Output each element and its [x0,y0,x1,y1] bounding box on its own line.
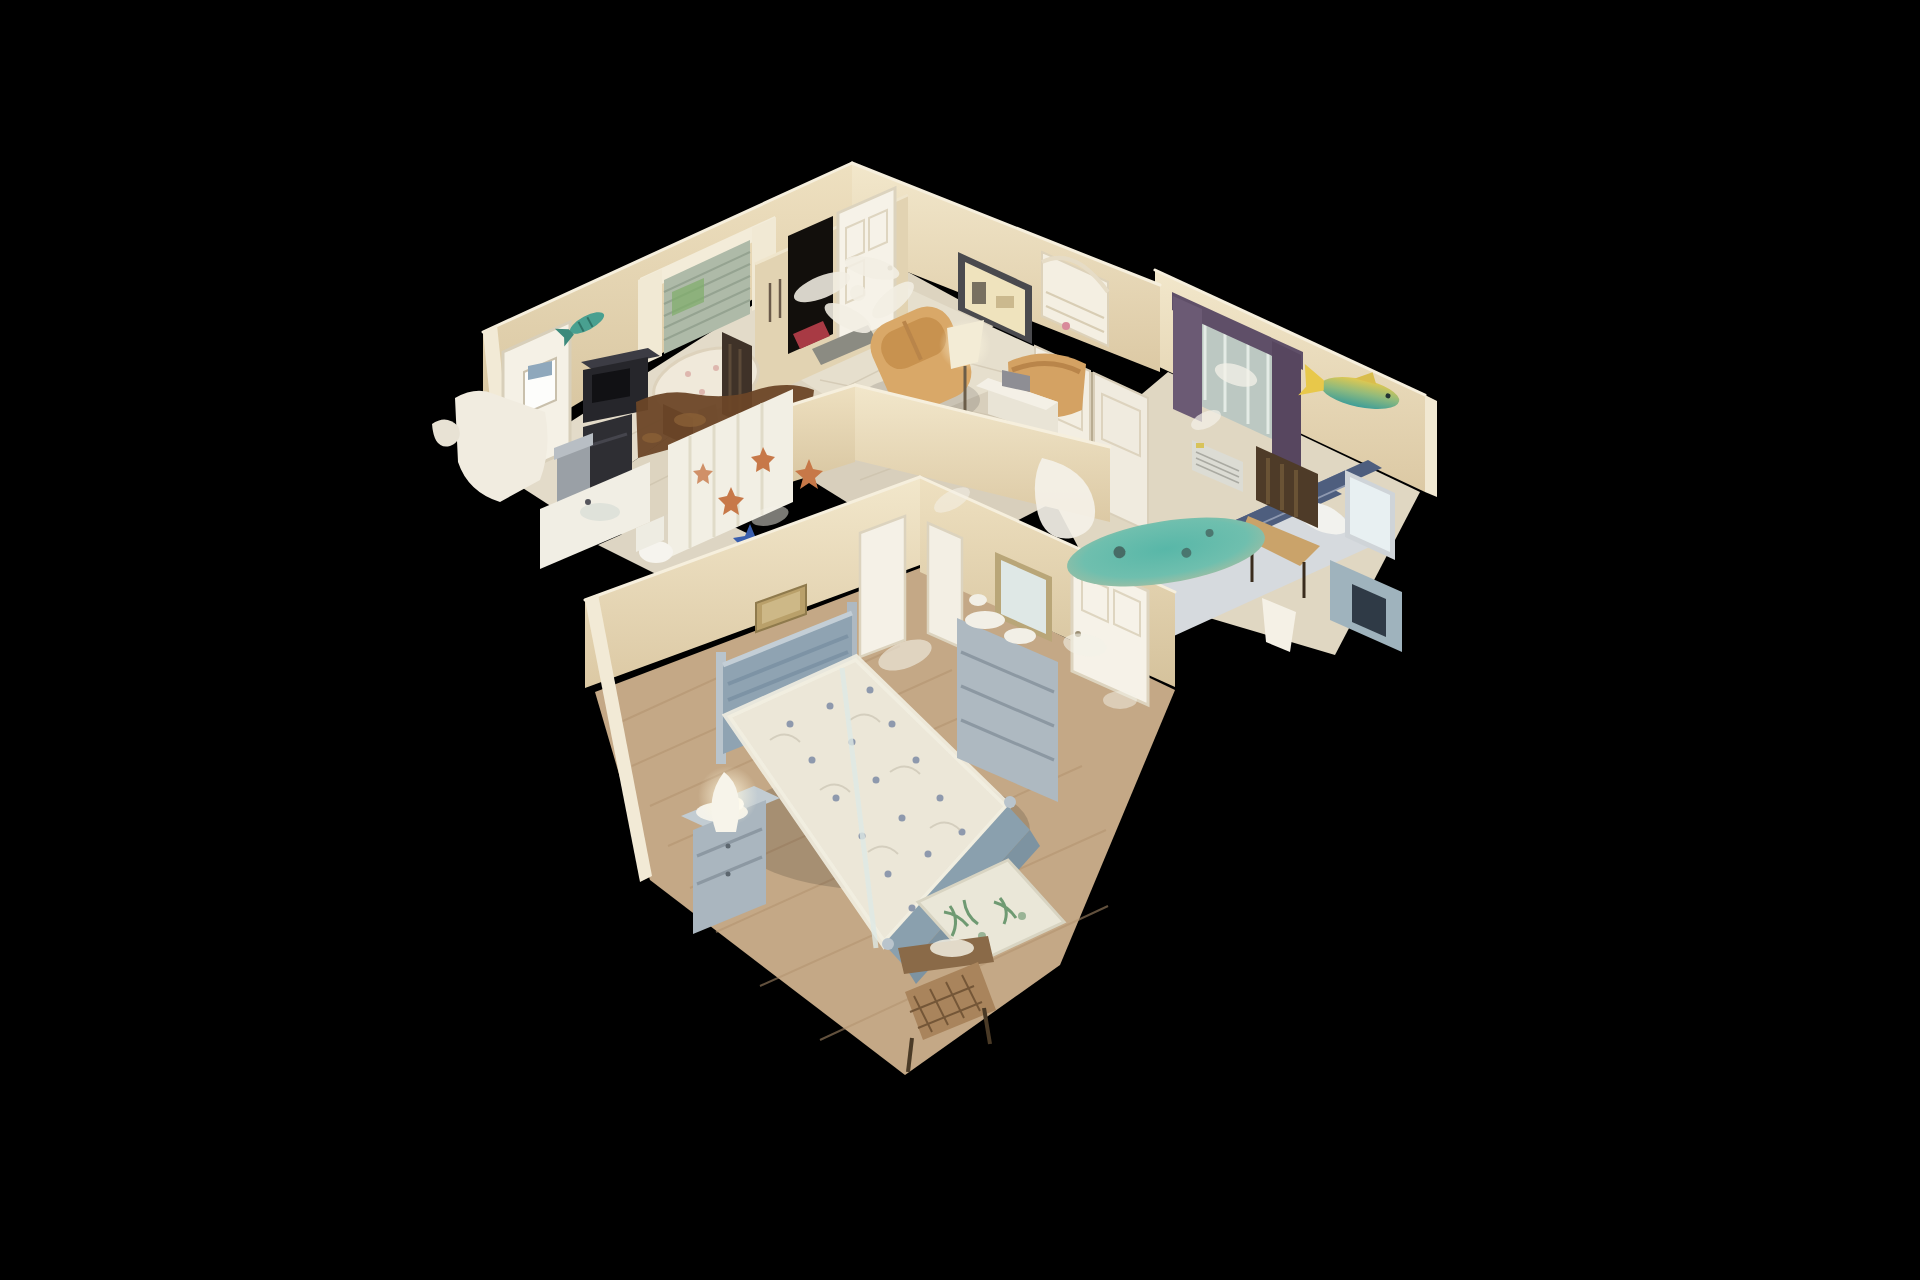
wall-end-cut [1425,395,1437,497]
curtain-right [1272,341,1301,470]
ac-sticker [1196,443,1204,448]
pink-trinket [1062,322,1070,330]
curtain-left [1173,296,1202,422]
faucet [585,499,591,505]
dollhouse-svg [0,0,1920,1280]
hall-door-1 [860,516,905,657]
hall-door-2 [928,523,962,648]
dollhouse-3d-view[interactable] [0,0,1920,1280]
scan-blob [930,939,974,957]
